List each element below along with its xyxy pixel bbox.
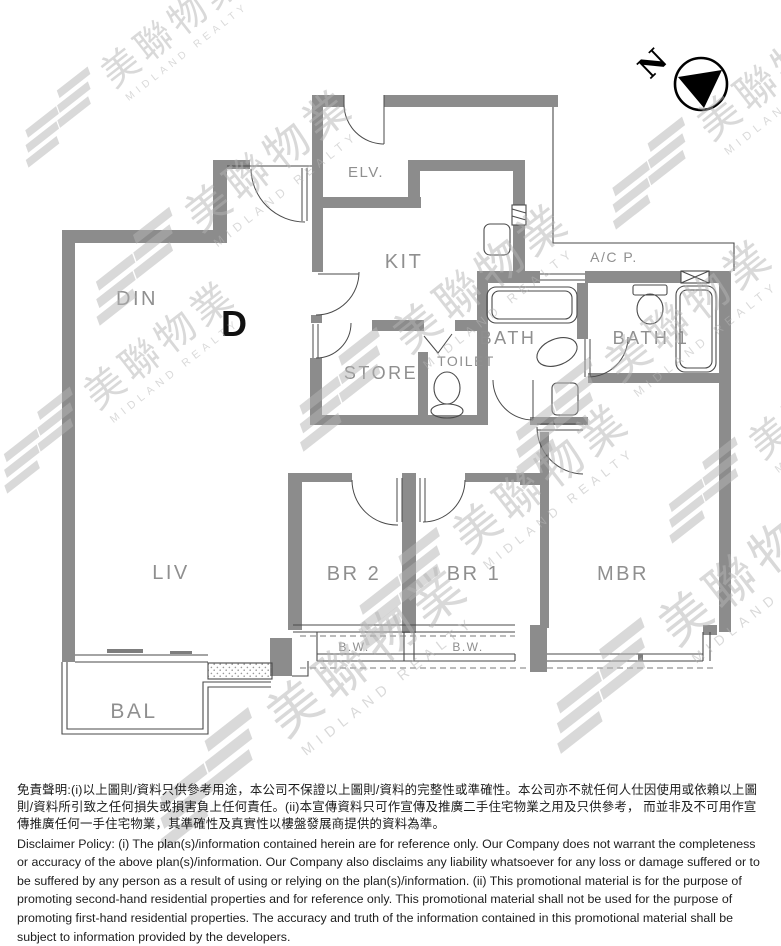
kitchen-sink-icon: [484, 224, 510, 255]
north-label: N: [631, 42, 674, 85]
room-label-bath1: BATH 1: [613, 328, 690, 348]
room-label-mbr: MBR: [597, 563, 649, 585]
toilet-icon-toilet: [431, 372, 463, 418]
north-arrow-icon: N: [631, 42, 727, 110]
room-label-bal: BAL: [110, 700, 157, 723]
room-label-br1: BR 1: [447, 563, 501, 585]
floor-plan: 美聯物業 MIDLAND REALTY: [0, 0, 781, 780]
br2-door: [352, 478, 402, 525]
bath1-window: [681, 271, 709, 283]
walls: [62, 95, 731, 676]
room-label-din: DIN: [116, 288, 158, 310]
room-label-bw-br2: B.W.: [338, 640, 369, 654]
lobby-door: [344, 95, 384, 144]
br1-door: [420, 478, 465, 522]
room-label-br2: BR 2: [327, 563, 381, 585]
liv-window: [75, 649, 208, 662]
room-label-kit: KIT: [385, 251, 424, 273]
entry-door: [251, 168, 307, 222]
disclaimer-chinese: 免責聲明:(i)以上圖則/資料只供參考用途，本公司不保證以上圖則/資料的完整性或…: [17, 782, 765, 833]
disclaimer: 免責聲明:(i)以上圖則/資料只供參考用途，本公司不保證以上圖則/資料的完整性或…: [17, 782, 765, 946]
bay-window-outline: [300, 632, 530, 668]
disclaimer-english: Disclaimer Policy: (i) The plan(s)/infor…: [17, 835, 765, 946]
toilet-icon-bath1: [633, 285, 667, 324]
ac-platform: [553, 107, 734, 271]
room-label-acp: A/C P.: [590, 249, 638, 265]
bath-door: [493, 380, 533, 420]
store-door: [313, 323, 351, 358]
kitchen-door: [316, 272, 359, 315]
room-label-elv: ELV.: [348, 164, 384, 181]
wash-basin-icon: [533, 332, 582, 372]
room-label-liv: LIV: [152, 562, 190, 584]
room-label-bw-br1: B.W.: [452, 640, 483, 654]
room-label-toilet: TOILET: [437, 353, 495, 369]
room-label-bath: BATH: [480, 328, 537, 348]
kitchen-vent: [512, 205, 526, 225]
room-label-store: STORE: [344, 363, 418, 383]
unit-label: D: [221, 303, 247, 344]
bath-cabinet-icon: [552, 383, 578, 415]
toilet-folding-door: [424, 334, 452, 353]
mbr-window: [547, 632, 717, 668]
balcony-threshold: [208, 663, 272, 679]
bathtub-icon: [487, 287, 577, 323]
